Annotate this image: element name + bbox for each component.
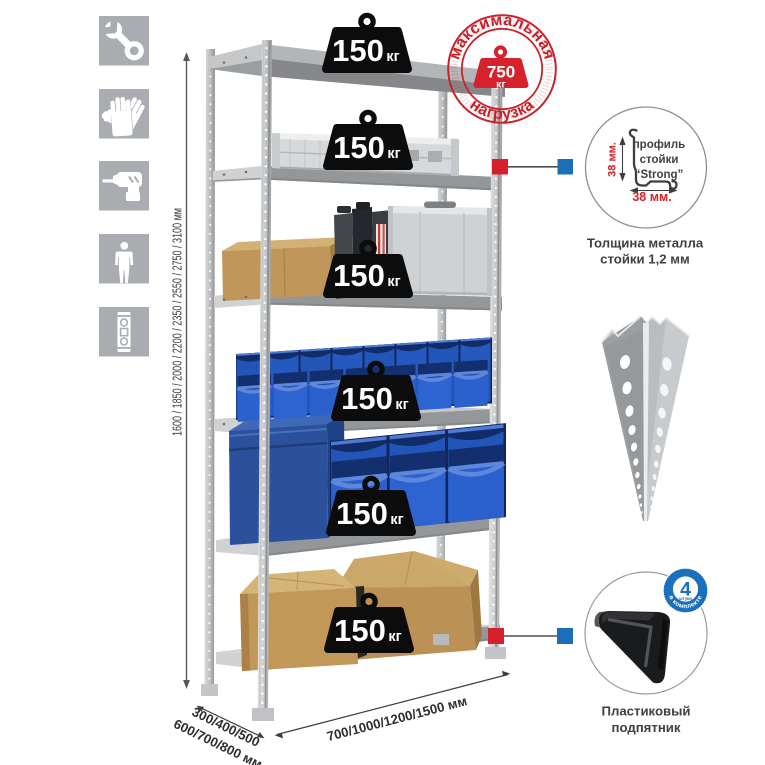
svg-text:1600 / 1850 / 2000 / 2200 / 23: 1600 / 1850 / 2000 / 2200 / 2350 / 2550 … [170, 208, 185, 436]
svg-text:подпятник: подпятник [611, 720, 680, 735]
svg-text:38 мм.: 38 мм. [632, 190, 671, 204]
svg-text:“Strong”: “Strong” [635, 169, 684, 181]
svg-text:стойки 1,2 мм: стойки 1,2 мм [600, 252, 690, 267]
svg-text:Пластиковый: Пластиковый [601, 704, 690, 719]
svg-text:кг: кг [395, 397, 408, 413]
svg-text:150: 150 [333, 258, 385, 293]
svg-text:кг: кг [388, 629, 401, 645]
svg-text:150: 150 [333, 130, 385, 165]
svg-text:150: 150 [341, 381, 393, 416]
svg-text:150: 150 [334, 613, 386, 648]
svg-text:кг: кг [387, 146, 400, 162]
svg-text:38 мм.: 38 мм. [607, 142, 619, 177]
svg-text:штуки: штуки [679, 596, 692, 601]
svg-text:профиль: профиль [633, 139, 686, 151]
svg-text:150: 150 [336, 496, 388, 531]
svg-text:кг: кг [387, 274, 400, 290]
svg-text:150: 150 [332, 33, 384, 68]
svg-text:кг: кг [496, 79, 506, 91]
svg-text:кг: кг [390, 512, 403, 528]
svg-text:кг: кг [386, 49, 399, 65]
svg-text:Толщина металла: Толщина металла [587, 236, 704, 251]
svg-text:стойки: стойки [640, 154, 679, 166]
